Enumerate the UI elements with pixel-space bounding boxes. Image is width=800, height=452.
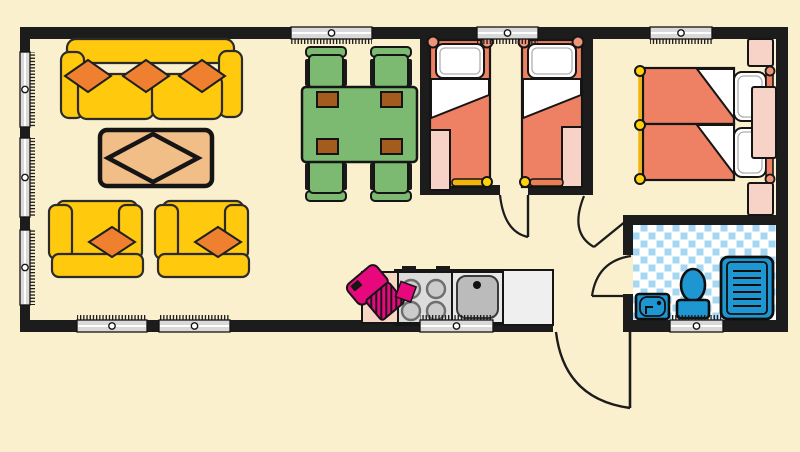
single-bed-1-cabinet bbox=[430, 130, 450, 190]
window-top-bedroom bbox=[477, 27, 538, 44]
window-left-3 bbox=[20, 230, 35, 305]
master-cabinet-mid bbox=[752, 87, 776, 158]
placemat-4 bbox=[381, 139, 402, 154]
floor-plan bbox=[0, 0, 800, 452]
wall-bathroom-top bbox=[623, 215, 788, 225]
window-left-1 bbox=[20, 52, 35, 127]
master-bed-knob-1 bbox=[635, 66, 645, 76]
wall-left-mid-2 bbox=[20, 217, 30, 230]
master-door-arc bbox=[578, 196, 594, 247]
window-top-master bbox=[650, 27, 712, 44]
dining-chair-top-2-seat bbox=[374, 55, 408, 88]
single-bed-1-pillow bbox=[436, 44, 484, 78]
master-bed-post-1 bbox=[766, 67, 775, 76]
wall-partition-bedrooms bbox=[583, 27, 593, 195]
master-cabinet-top bbox=[748, 39, 773, 66]
wall-left-mid-1 bbox=[20, 127, 30, 138]
master-bed-knob-2 bbox=[635, 120, 645, 130]
armchair-2-front bbox=[158, 254, 249, 277]
armchair-2-arm-left bbox=[155, 205, 178, 259]
armchair-1-front bbox=[52, 254, 143, 277]
placemat-1 bbox=[317, 92, 338, 107]
entry-door-arc bbox=[556, 332, 630, 408]
placemat-3 bbox=[317, 139, 338, 154]
window-bottom-1 bbox=[77, 315, 147, 332]
single-bed-2-pillow bbox=[528, 44, 576, 78]
wall-right bbox=[776, 27, 788, 332]
single-bed-2-rail bbox=[530, 179, 563, 186]
wall-partition-living bbox=[420, 27, 430, 195]
stove-burner-3 bbox=[402, 302, 420, 320]
placemat-2 bbox=[381, 92, 402, 107]
single-bed-1-knob bbox=[482, 177, 492, 187]
shower-tray bbox=[721, 257, 773, 319]
dining-chair-bottom-2-seat bbox=[374, 160, 408, 193]
stove-burner-2 bbox=[427, 280, 445, 298]
bathroom-basin-dot bbox=[657, 301, 661, 305]
single-bed-2-cabinet bbox=[562, 127, 582, 187]
master-door-leaf bbox=[594, 221, 626, 247]
single-bed-1-rail bbox=[452, 179, 485, 186]
window-bathroom bbox=[670, 315, 723, 332]
master-bed-knob-3 bbox=[635, 174, 645, 184]
bathroom-door-arc bbox=[592, 256, 631, 296]
single-bed-1-post-left bbox=[428, 37, 439, 48]
wall-left-top bbox=[20, 27, 30, 52]
window-kitchen bbox=[420, 315, 493, 332]
single-bed-2-post-right bbox=[573, 37, 584, 48]
single-bed-2-knob bbox=[520, 177, 530, 187]
kitchen-sink-drain bbox=[473, 281, 481, 289]
wall-bathroom-left-lower bbox=[623, 294, 633, 332]
dining-chair-top-1-seat bbox=[309, 55, 343, 88]
master-cabinet-bottom bbox=[748, 183, 773, 215]
floor-plan-canvas bbox=[0, 0, 800, 452]
window-bottom-2 bbox=[159, 315, 230, 332]
dining-chair-bottom-1-seat bbox=[309, 160, 343, 193]
window-top-living bbox=[291, 27, 372, 44]
sofa-backrest bbox=[67, 39, 234, 63]
window-left-2 bbox=[20, 138, 35, 217]
floor-plan-shapes bbox=[20, 27, 788, 408]
armchair-1-arm-left bbox=[49, 205, 72, 259]
bedroom-door-arc bbox=[500, 195, 528, 237]
toilet-bowl bbox=[681, 269, 705, 301]
wall-left-bottom bbox=[20, 305, 30, 332]
